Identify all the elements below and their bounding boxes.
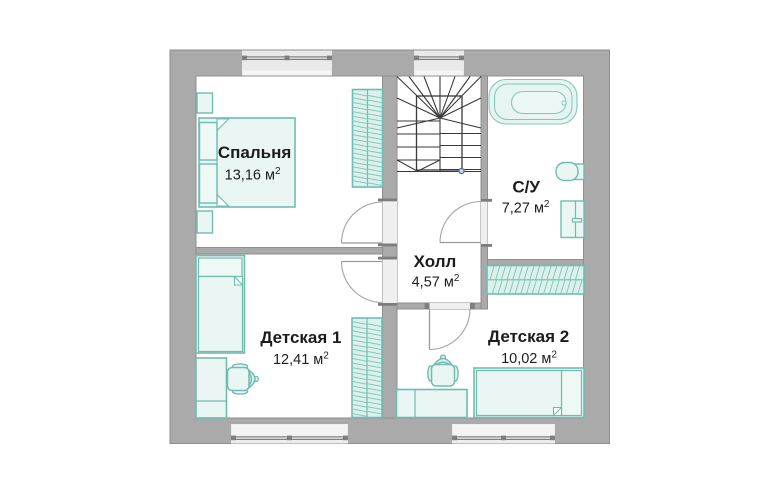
svg-text:12,41 м2: 12,41 м2 [273,351,329,369]
svg-text:Спальня: Спальня [218,143,291,162]
svg-text:13,16 м2: 13,16 м2 [225,166,281,184]
svg-text:С/У: С/У [512,177,540,196]
svg-text:Детская 1: Детская 1 [260,328,341,347]
svg-text:7,27 м2: 7,27 м2 [502,199,550,217]
svg-text:10,02 м2: 10,02 м2 [501,350,557,368]
svg-text:Детская 2: Детская 2 [488,327,569,346]
svg-text:Холл: Холл [414,252,457,271]
svg-text:4,57 м2: 4,57 м2 [412,273,460,291]
